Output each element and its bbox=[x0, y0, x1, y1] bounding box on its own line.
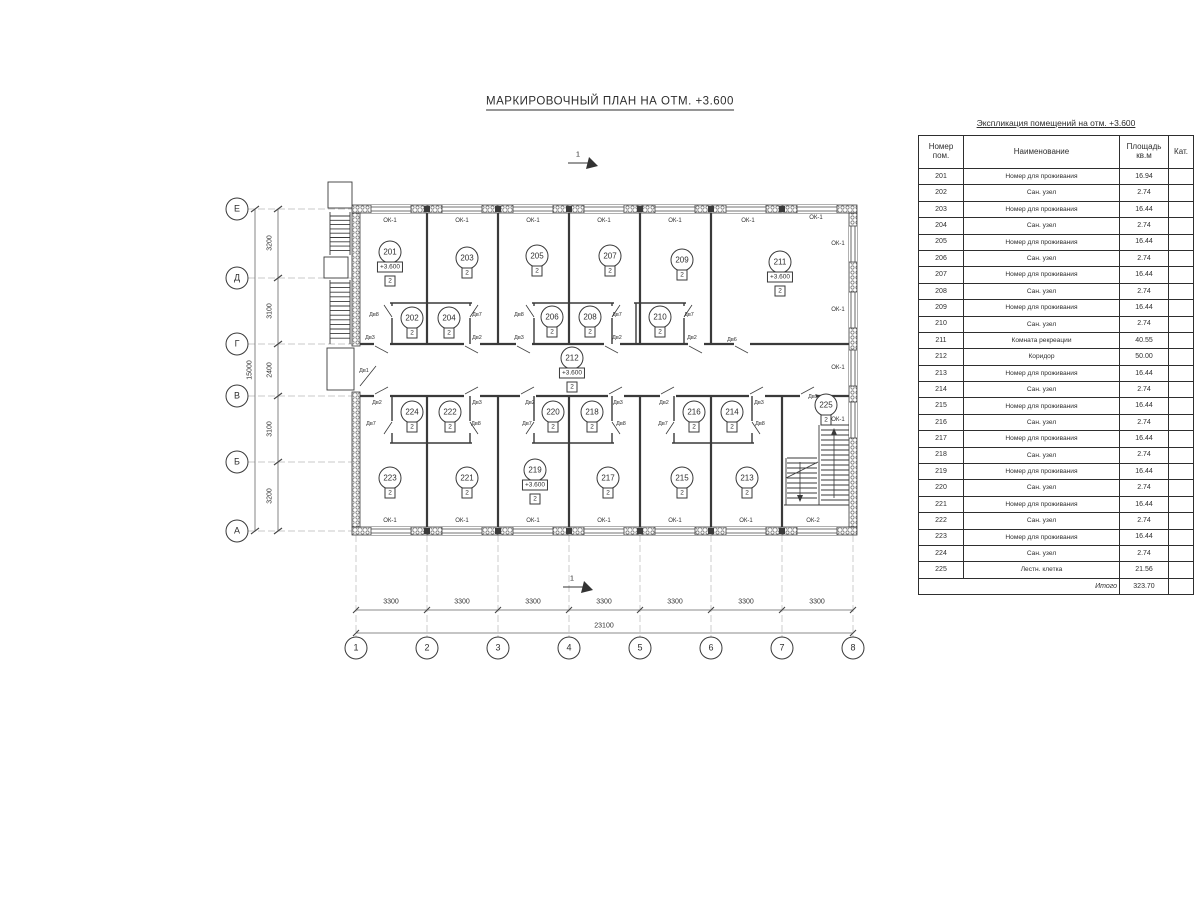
room-number-cell: 222 bbox=[919, 513, 964, 529]
explication-grid: Номер пом. Наименование Площадь кв.м Кат… bbox=[918, 135, 1194, 595]
table-row: 212Коридор50.00 bbox=[919, 349, 1194, 365]
room-number-cell: 210 bbox=[919, 316, 964, 332]
room-area-cell: 2.74 bbox=[1120, 414, 1169, 430]
table-row: 224Сан. узел2.74 bbox=[919, 545, 1194, 561]
room-name-cell: Номер для проживания bbox=[964, 169, 1120, 185]
room-name-cell: Сан. узел bbox=[964, 480, 1120, 496]
table-row: 223Номер для проживания16.44 bbox=[919, 529, 1194, 545]
explication-table: Экспликация помещений на отм. +3.600 Ном… bbox=[918, 118, 1194, 595]
room-category-cell bbox=[1169, 169, 1194, 185]
table-row: 203Номер для проживания16.44 bbox=[919, 201, 1194, 217]
table-row: 219Номер для проживания16.44 bbox=[919, 464, 1194, 480]
table-row: 210Сан. узел2.74 bbox=[919, 316, 1194, 332]
room-number-cell: 212 bbox=[919, 349, 964, 365]
room-area-cell: 16.44 bbox=[1120, 529, 1169, 545]
room-number-cell: 223 bbox=[919, 529, 964, 545]
room-category-cell bbox=[1169, 529, 1194, 545]
room-category-cell bbox=[1169, 513, 1194, 529]
room-area-cell: 2.74 bbox=[1120, 480, 1169, 496]
room-area-cell: 2.74 bbox=[1120, 218, 1169, 234]
room-number-cell: 217 bbox=[919, 431, 964, 447]
room-name-cell: Сан. узел bbox=[964, 316, 1120, 332]
room-number-cell: 209 bbox=[919, 300, 964, 316]
room-area-cell: 16.44 bbox=[1120, 496, 1169, 512]
room-category-cell bbox=[1169, 365, 1194, 381]
room-number-cell: 221 bbox=[919, 496, 964, 512]
room-number-cell: 220 bbox=[919, 480, 964, 496]
table-row: 207Номер для проживания16.44 bbox=[919, 267, 1194, 283]
total-label-cell: Итого bbox=[919, 578, 1120, 594]
room-name-cell: Номер для проживания bbox=[964, 398, 1120, 414]
room-number-cell: 218 bbox=[919, 447, 964, 463]
room-area-cell: 16.44 bbox=[1120, 398, 1169, 414]
room-category-cell bbox=[1169, 545, 1194, 561]
room-name-cell: Номер для проживания bbox=[964, 365, 1120, 381]
room-name-cell: Сан. узел bbox=[964, 218, 1120, 234]
room-number-cell: 206 bbox=[919, 250, 964, 266]
room-number-cell: 205 bbox=[919, 234, 964, 250]
room-name-cell: Номер для проживания bbox=[964, 431, 1120, 447]
room-name-cell: Комната рекреации bbox=[964, 332, 1120, 348]
room-category-cell bbox=[1169, 431, 1194, 447]
room-area-cell: 2.74 bbox=[1120, 447, 1169, 463]
room-name-cell: Номер для проживания bbox=[964, 529, 1120, 545]
table-row: 222Сан. узел2.74 bbox=[919, 513, 1194, 529]
room-name-cell: Сан. узел bbox=[964, 283, 1120, 299]
room-name-cell: Номер для проживания bbox=[964, 267, 1120, 283]
room-name-cell: Сан. узел bbox=[964, 185, 1120, 201]
room-category-cell bbox=[1169, 250, 1194, 266]
col-header-category: Кат. bbox=[1169, 136, 1194, 169]
room-name-cell: Номер для проживания bbox=[964, 496, 1120, 512]
room-number-cell: 213 bbox=[919, 365, 964, 381]
room-area-cell: 2.74 bbox=[1120, 545, 1169, 561]
table-row: 215Номер для проживания16.44 bbox=[919, 398, 1194, 414]
room-number-cell: 204 bbox=[919, 218, 964, 234]
room-category-cell bbox=[1169, 267, 1194, 283]
room-area-cell: 2.74 bbox=[1120, 283, 1169, 299]
room-number-cell: 202 bbox=[919, 185, 964, 201]
room-area-cell: 21.56 bbox=[1120, 562, 1169, 578]
table-row: 220Сан. узел2.74 bbox=[919, 480, 1194, 496]
explication-title: Экспликация помещений на отм. +3.600 bbox=[918, 118, 1194, 128]
room-number-cell: 225 bbox=[919, 562, 964, 578]
room-category-cell bbox=[1169, 218, 1194, 234]
room-category-cell bbox=[1169, 349, 1194, 365]
table-row: 213Номер для проживания16.44 bbox=[919, 365, 1194, 381]
table-total-row: Итого323.70 bbox=[919, 578, 1194, 594]
room-name-cell: Номер для проживания bbox=[964, 201, 1120, 217]
page-title: МАРКИРОВОЧНЫЙ ПЛАН НА ОТМ. +3.600 bbox=[486, 96, 734, 111]
room-name-cell: Номер для проживания bbox=[964, 300, 1120, 316]
room-category-cell bbox=[1169, 480, 1194, 496]
room-area-cell: 16.44 bbox=[1120, 201, 1169, 217]
table-row: 218Сан. узел2.74 bbox=[919, 447, 1194, 463]
room-number-cell: 211 bbox=[919, 332, 964, 348]
room-name-cell: Сан. узел bbox=[964, 513, 1120, 529]
room-category-cell bbox=[1169, 414, 1194, 430]
room-number-cell: 214 bbox=[919, 382, 964, 398]
room-number-cell: 215 bbox=[919, 398, 964, 414]
room-category-cell bbox=[1169, 332, 1194, 348]
room-area-cell: 16.44 bbox=[1120, 431, 1169, 447]
room-name-cell: Сан. узел bbox=[964, 545, 1120, 561]
room-number-cell: 203 bbox=[919, 201, 964, 217]
total-category-cell bbox=[1169, 578, 1194, 594]
room-area-cell: 16.44 bbox=[1120, 300, 1169, 316]
room-category-cell bbox=[1169, 300, 1194, 316]
table-row: 221Номер для проживания16.44 bbox=[919, 496, 1194, 512]
room-number-cell: 207 bbox=[919, 267, 964, 283]
room-area-cell: 2.74 bbox=[1120, 185, 1169, 201]
table-row: 214Сан. узел2.74 bbox=[919, 382, 1194, 398]
room-category-cell bbox=[1169, 464, 1194, 480]
table-row: 208Сан. узел2.74 bbox=[919, 283, 1194, 299]
room-category-cell bbox=[1169, 185, 1194, 201]
room-category-cell bbox=[1169, 234, 1194, 250]
room-area-cell: 2.74 bbox=[1120, 513, 1169, 529]
room-area-cell: 2.74 bbox=[1120, 382, 1169, 398]
room-number-cell: 208 bbox=[919, 283, 964, 299]
room-name-cell: Коридор bbox=[964, 349, 1120, 365]
table-row: 201Номер для проживания16.94 bbox=[919, 169, 1194, 185]
room-category-cell bbox=[1169, 562, 1194, 578]
room-area-cell: 16.44 bbox=[1120, 234, 1169, 250]
room-area-cell: 40.55 bbox=[1120, 332, 1169, 348]
table-row: 204Сан. узел2.74 bbox=[919, 218, 1194, 234]
room-number-cell: 219 bbox=[919, 464, 964, 480]
table-row: 205Номер для проживания16.44 bbox=[919, 234, 1194, 250]
room-category-cell bbox=[1169, 447, 1194, 463]
room-name-cell: Сан. узел bbox=[964, 447, 1120, 463]
room-number-cell: 201 bbox=[919, 169, 964, 185]
room-area-cell: 2.74 bbox=[1120, 316, 1169, 332]
drawing-sheet: МАРКИРОВОЧНЫЙ ПЛАН НА ОТМ. +3.600 201+3.… bbox=[0, 0, 1200, 900]
table-row: 216Сан. узел2.74 bbox=[919, 414, 1194, 430]
table-row: 217Номер для проживания16.44 bbox=[919, 431, 1194, 447]
table-row: 209Номер для проживания16.44 bbox=[919, 300, 1194, 316]
room-name-cell: Номер для проживания bbox=[964, 234, 1120, 250]
total-value-cell: 323.70 bbox=[1120, 578, 1169, 594]
room-name-cell: Лестн. клетка bbox=[964, 562, 1120, 578]
room-category-cell bbox=[1169, 283, 1194, 299]
room-category-cell bbox=[1169, 316, 1194, 332]
room-category-cell bbox=[1169, 398, 1194, 414]
room-area-cell: 2.74 bbox=[1120, 250, 1169, 266]
table-row: 202Сан. узел2.74 bbox=[919, 185, 1194, 201]
room-category-cell bbox=[1169, 382, 1194, 398]
room-category-cell bbox=[1169, 496, 1194, 512]
room-name-cell: Сан. узел bbox=[964, 250, 1120, 266]
room-name-cell: Сан. узел bbox=[964, 414, 1120, 430]
room-number-cell: 216 bbox=[919, 414, 964, 430]
col-header-name: Наименование bbox=[964, 136, 1120, 169]
col-header-area: Площадь кв.м bbox=[1120, 136, 1169, 169]
room-area-cell: 16.44 bbox=[1120, 464, 1169, 480]
room-name-cell: Сан. узел bbox=[964, 382, 1120, 398]
table-row: 211Комната рекреации40.55 bbox=[919, 332, 1194, 348]
room-area-cell: 50.00 bbox=[1120, 349, 1169, 365]
col-header-number: Номер пом. bbox=[919, 136, 964, 169]
room-area-cell: 16.94 bbox=[1120, 169, 1169, 185]
table-header-row: Номер пом. Наименование Площадь кв.м Кат… bbox=[919, 136, 1194, 169]
room-name-cell: Номер для проживания bbox=[964, 464, 1120, 480]
room-area-cell: 16.44 bbox=[1120, 365, 1169, 381]
room-number-cell: 224 bbox=[919, 545, 964, 561]
room-category-cell bbox=[1169, 201, 1194, 217]
table-row: 206Сан. узел2.74 bbox=[919, 250, 1194, 266]
room-area-cell: 16.44 bbox=[1120, 267, 1169, 283]
table-row: 225Лестн. клетка21.56 bbox=[919, 562, 1194, 578]
